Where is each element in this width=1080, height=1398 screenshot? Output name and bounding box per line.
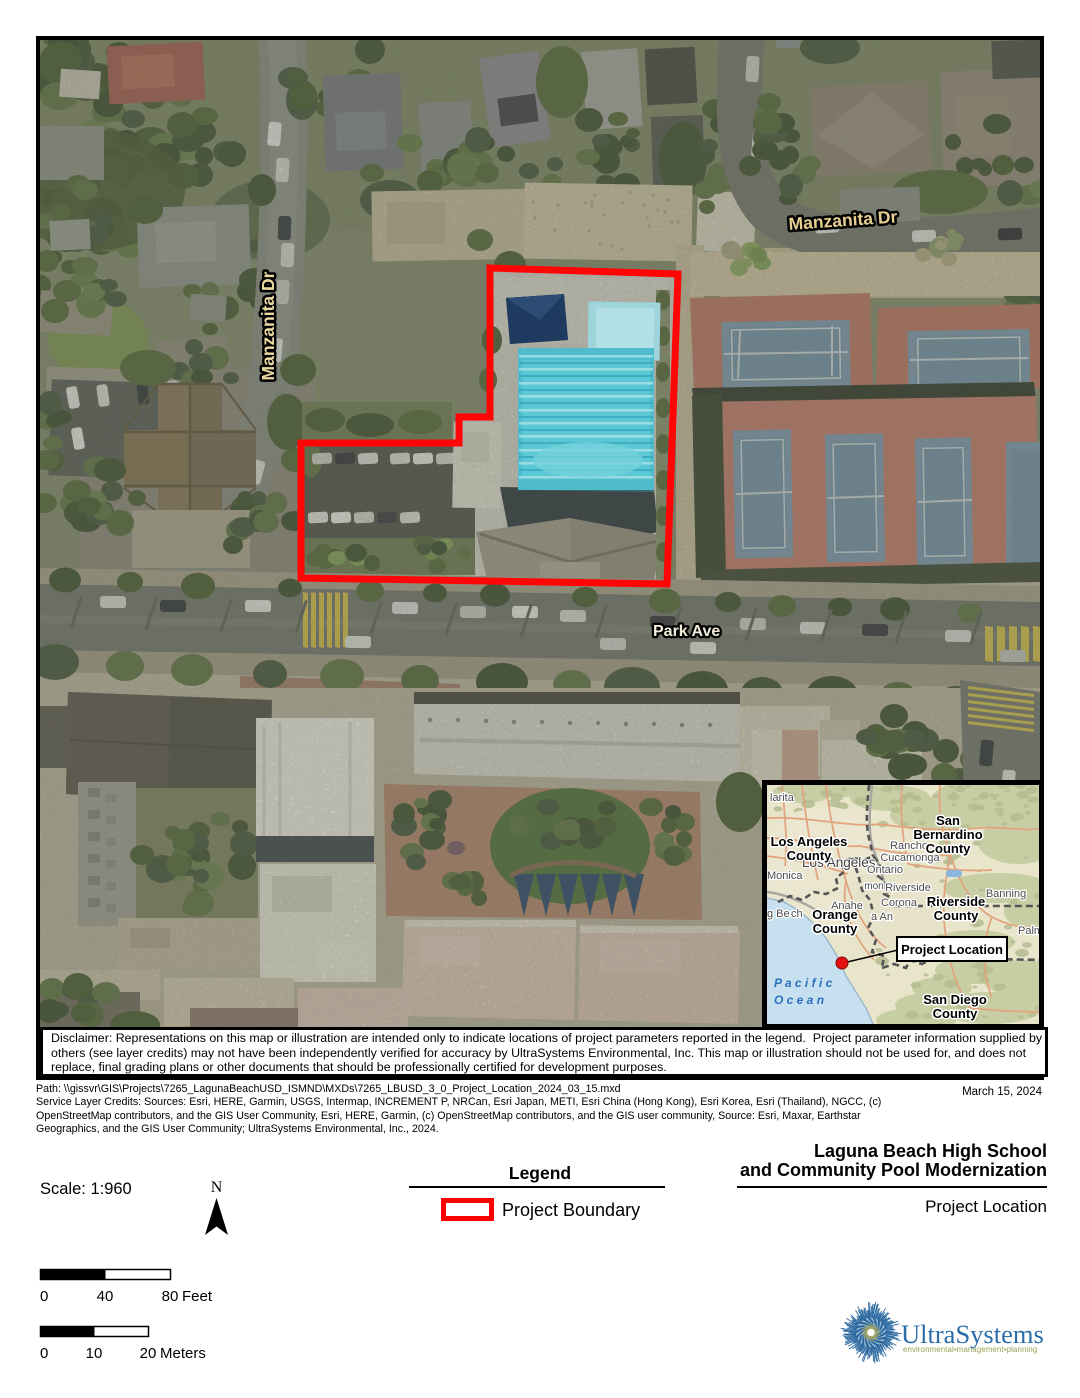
svg-text:County: County [934,908,980,923]
svg-text:0: 0 [40,1288,48,1305]
svg-text:g Be: g Be [767,908,790,920]
svg-text:San: San [936,813,960,828]
svg-text:40: 40 [97,1288,114,1305]
svg-text:80: 80 [162,1288,179,1305]
svg-text:County: County [813,921,859,936]
svg-text:a An: a An [871,911,893,923]
svg-text:P a c i f i c: P a c i f i c [774,976,833,990]
svg-text:Palm D: Palm D [1018,925,1040,937]
svg-text:Riverside: Riverside [927,894,986,909]
svg-text:mon: mon [864,881,883,892]
svg-text:County: County [933,1006,979,1021]
svg-text:Monica: Monica [767,870,803,882]
svg-text:Project Location: Project Location [901,942,1003,957]
svg-text:Manzanita Dr: Manzanita Dr [258,271,278,380]
svg-text:Park Ave: Park Ave [653,623,720,640]
svg-text:Riverside: Riverside [885,882,931,894]
svg-text:San Diego: San Diego [923,992,987,1007]
svg-text:Los Angeles: Los Angeles [771,834,848,849]
svg-text:Banning: Banning [986,888,1026,900]
svg-text:Orange: Orange [812,907,858,922]
svg-text:N: N [211,1179,223,1196]
svg-text:larita: larita [770,792,795,804]
svg-text:environmental•management•plann: environmental•management•planning [903,1345,1037,1354]
svg-text:Bernardino: Bernardino [913,827,982,842]
svg-text:Feet: Feet [182,1288,213,1305]
svg-text:10: 10 [86,1345,103,1362]
svg-text:O c e a n: O c e a n [774,993,824,1007]
svg-text:ch: ch [791,908,803,920]
svg-text:County: County [787,848,833,863]
svg-text:Meters: Meters [160,1345,206,1362]
svg-text:County: County [926,841,972,856]
svg-text:Ontario: Ontario [867,864,903,876]
svg-text:0: 0 [40,1345,48,1362]
svg-text:20: 20 [140,1345,157,1362]
svg-text:Corona: Corona [881,897,918,909]
